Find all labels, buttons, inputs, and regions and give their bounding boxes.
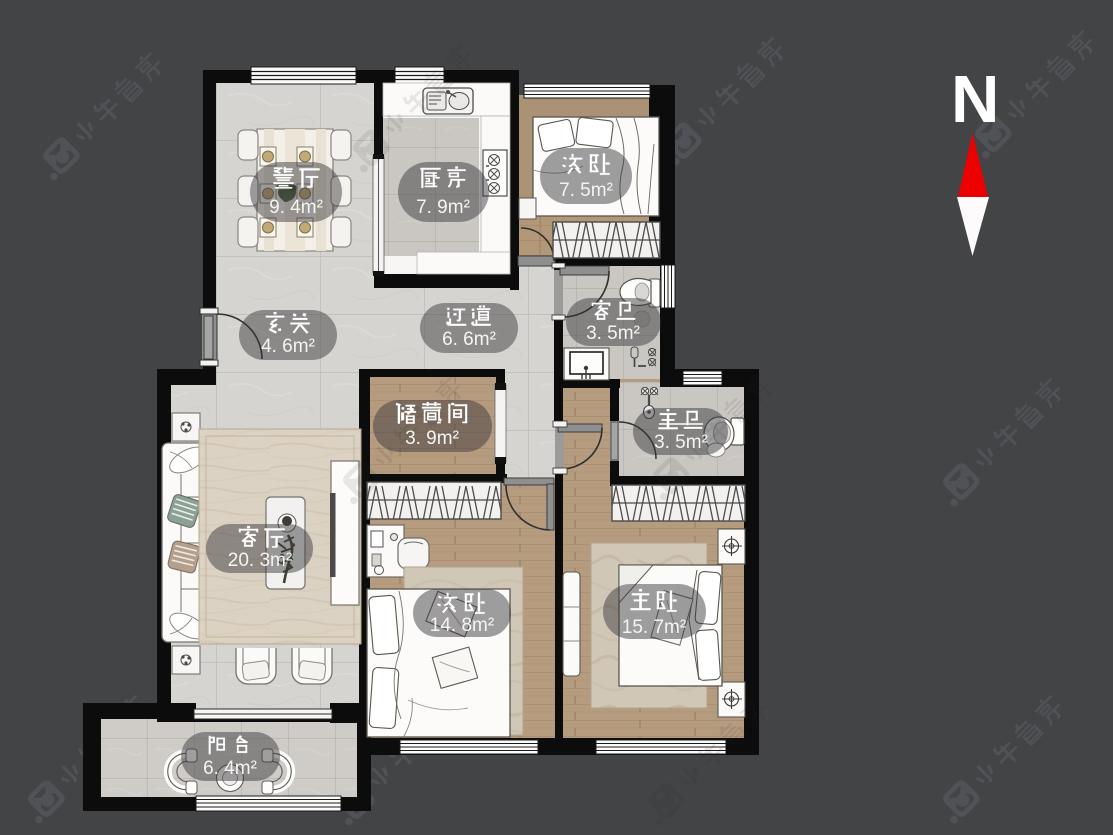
svg-text:9. 4m²: 9. 4m² <box>269 197 323 218</box>
svg-text:14. 8m²: 14. 8m² <box>430 615 494 636</box>
svg-text:7. 5m²: 7. 5m² <box>559 180 613 201</box>
svg-text:7. 9m²: 7. 9m² <box>416 197 470 218</box>
svg-text:3. 5m²: 3. 5m² <box>586 323 640 344</box>
svg-text:4. 6m²: 4. 6m² <box>261 336 315 357</box>
svg-text:6. 4m²: 6. 4m² <box>203 758 257 779</box>
svg-text:6. 6m²: 6. 6m² <box>442 329 496 350</box>
svg-text:N: N <box>951 62 999 137</box>
svg-text:3. 5m²: 3. 5m² <box>654 432 708 453</box>
svg-text:15. 7m²: 15. 7m² <box>622 617 686 638</box>
svg-text:3. 9m²: 3. 9m² <box>405 428 459 449</box>
svg-text:20. 3m²: 20. 3m² <box>228 550 292 571</box>
